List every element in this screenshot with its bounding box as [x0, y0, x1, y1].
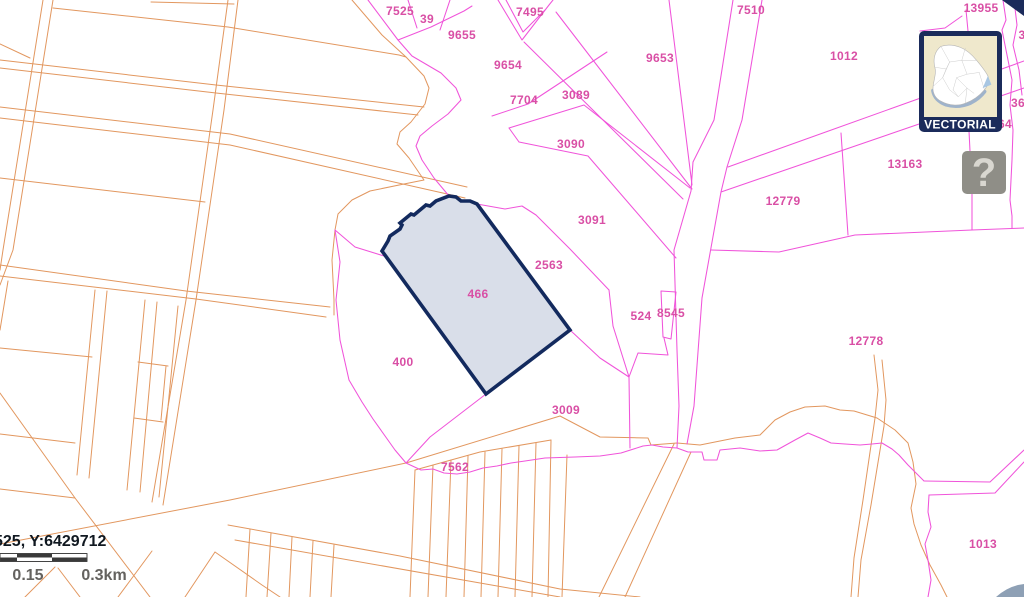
svg-text:524: 524 [631, 309, 652, 323]
svg-text:3091: 3091 [578, 213, 606, 227]
svg-text:400: 400 [393, 355, 414, 369]
svg-text:1012: 1012 [830, 49, 858, 63]
svg-text:13955: 13955 [964, 1, 999, 15]
svg-text:3: 3 [1019, 28, 1024, 42]
svg-text:39: 39 [420, 12, 434, 26]
svg-text:7510: 7510 [737, 3, 765, 17]
svg-text:1013: 1013 [969, 537, 997, 551]
svg-text:9654: 9654 [494, 58, 522, 72]
svg-text:36: 36 [1011, 96, 1024, 110]
svg-text:9653: 9653 [646, 51, 674, 65]
svg-text:7525: 7525 [386, 4, 414, 18]
svg-text:12779: 12779 [766, 194, 801, 208]
svg-text:466: 466 [468, 287, 489, 301]
svg-text:VECTORIAL: VECTORIAL [924, 118, 996, 132]
svg-text:3009: 3009 [552, 403, 580, 417]
svg-text:3090: 3090 [557, 137, 585, 151]
svg-text:7704: 7704 [510, 93, 538, 107]
svg-text:2563: 2563 [535, 258, 563, 272]
svg-text:?: ? [972, 151, 996, 195]
svg-text:7562: 7562 [441, 460, 469, 474]
svg-text:525, Y:6429712: 525, Y:6429712 [0, 533, 107, 550]
svg-text:9655: 9655 [448, 28, 476, 42]
svg-text:12778: 12778 [849, 334, 884, 348]
svg-text:8545: 8545 [657, 306, 685, 320]
svg-text:0.15: 0.15 [12, 567, 43, 584]
svg-text:3089: 3089 [562, 88, 590, 102]
svg-text:0.3km: 0.3km [81, 567, 126, 584]
svg-text:13163: 13163 [888, 157, 923, 171]
svg-text:7495: 7495 [516, 5, 544, 19]
